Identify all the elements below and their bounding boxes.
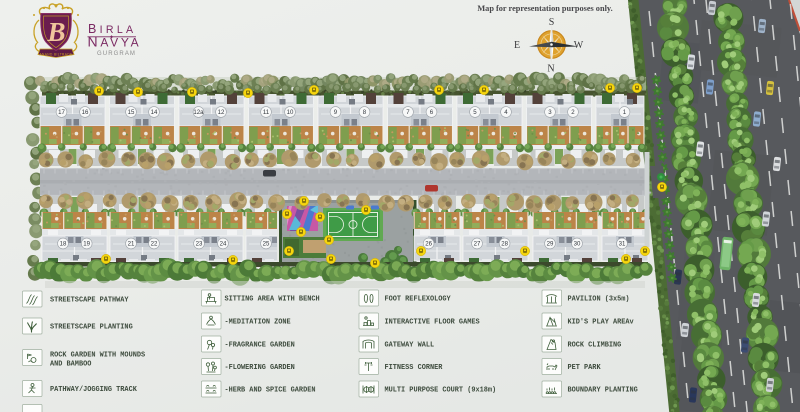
svg-text:BOUNDARY PLANTING: BOUNDARY PLANTING <box>568 387 638 395</box>
svg-text:GATEWAY WALL: GATEWAY WALL <box>385 342 435 350</box>
svg-text:PATHWAY/JOGGING TRACK: PATHWAY/JOGGING TRACK <box>50 386 138 394</box>
svg-text:17: 17 <box>58 109 65 116</box>
svg-text:E: E <box>514 40 520 51</box>
svg-text:MULTI PURPOSE COURT (9x18m): MULTI PURPOSE COURT (9x18m) <box>385 387 497 395</box>
svg-text:-FRAGRANCE GARDEN: -FRAGRANCE GARDEN <box>225 342 295 350</box>
svg-text:FOOT REFLEXOLOGY: FOOT REFLEXOLOGY <box>385 296 452 304</box>
svg-text:-MEDITATION ZONE: -MEDITATION ZONE <box>225 319 291 327</box>
svg-text:AND BAMBOO: AND BAMBOO <box>50 361 91 369</box>
svg-text:GURGRAM: GURGRAM <box>97 51 136 57</box>
svg-text:18: 18 <box>60 241 67 248</box>
svg-text:23: 23 <box>196 241 203 248</box>
svg-text:Map for representation purpose: Map for representation purposes only. <box>477 4 612 13</box>
svg-text:21: 21 <box>128 241 135 248</box>
svg-text:22: 22 <box>151 241 158 248</box>
svg-text:28: 28 <box>501 241 508 248</box>
svg-text:11: 11 <box>263 109 270 116</box>
svg-text:S: S <box>549 17 555 28</box>
svg-text:KID'S PLAY AREAv: KID'S PLAY AREAv <box>568 319 635 327</box>
svg-text:INTERACTIVE FLOOR GAMES: INTERACTIVE FLOOR GAMES <box>385 319 480 327</box>
svg-text:16: 16 <box>82 109 89 116</box>
svg-text:PET PARK: PET PARK <box>568 364 602 372</box>
svg-text:ROCK GARDEN WITH MOUNDS: ROCK GARDEN WITH MOUNDS <box>50 352 145 360</box>
svg-text:-HERB AND SPICE GARDEN: -HERB AND SPICE GARDEN <box>225 387 316 395</box>
svg-text:26: 26 <box>425 241 432 248</box>
svg-text:SITTING AREA WITH BENCH: SITTING AREA WITH BENCH <box>225 296 320 304</box>
svg-text:10: 10 <box>287 109 294 116</box>
svg-text:30: 30 <box>574 241 581 248</box>
svg-text:19: 19 <box>83 241 90 248</box>
svg-text:15: 15 <box>128 109 135 116</box>
svg-text:N: N <box>547 64 554 75</box>
svg-text:NAVYA: NAVYA <box>88 34 142 50</box>
svg-text:12: 12 <box>218 109 225 116</box>
svg-text:14: 14 <box>151 109 158 116</box>
svg-text:PAVILION (3x5m): PAVILION (3x5m) <box>568 296 630 304</box>
svg-text:31: 31 <box>619 241 626 248</box>
svg-text:25: 25 <box>263 241 270 248</box>
svg-text:-FLOWERING GARDEN: -FLOWERING GARDEN <box>225 364 295 372</box>
svg-text:12a: 12a <box>193 109 204 116</box>
svg-text:B: B <box>46 17 65 47</box>
svg-text:ANAND BILTRADE: ANAND BILTRADE <box>40 53 73 57</box>
svg-text:STREETSCAPE PLANTING: STREETSCAPE PLANTING <box>50 324 133 332</box>
svg-text:STREETSCAPE PATHWAY: STREETSCAPE PATHWAY <box>50 297 129 305</box>
svg-text:29: 29 <box>547 241 554 248</box>
svg-text:ROCK CLIMBING: ROCK CLIMBING <box>568 342 622 350</box>
svg-text:FITNESS CORNER: FITNESS CORNER <box>385 364 444 372</box>
svg-text:24: 24 <box>220 241 227 248</box>
svg-text:W: W <box>574 40 584 51</box>
svg-text:27: 27 <box>474 241 481 248</box>
